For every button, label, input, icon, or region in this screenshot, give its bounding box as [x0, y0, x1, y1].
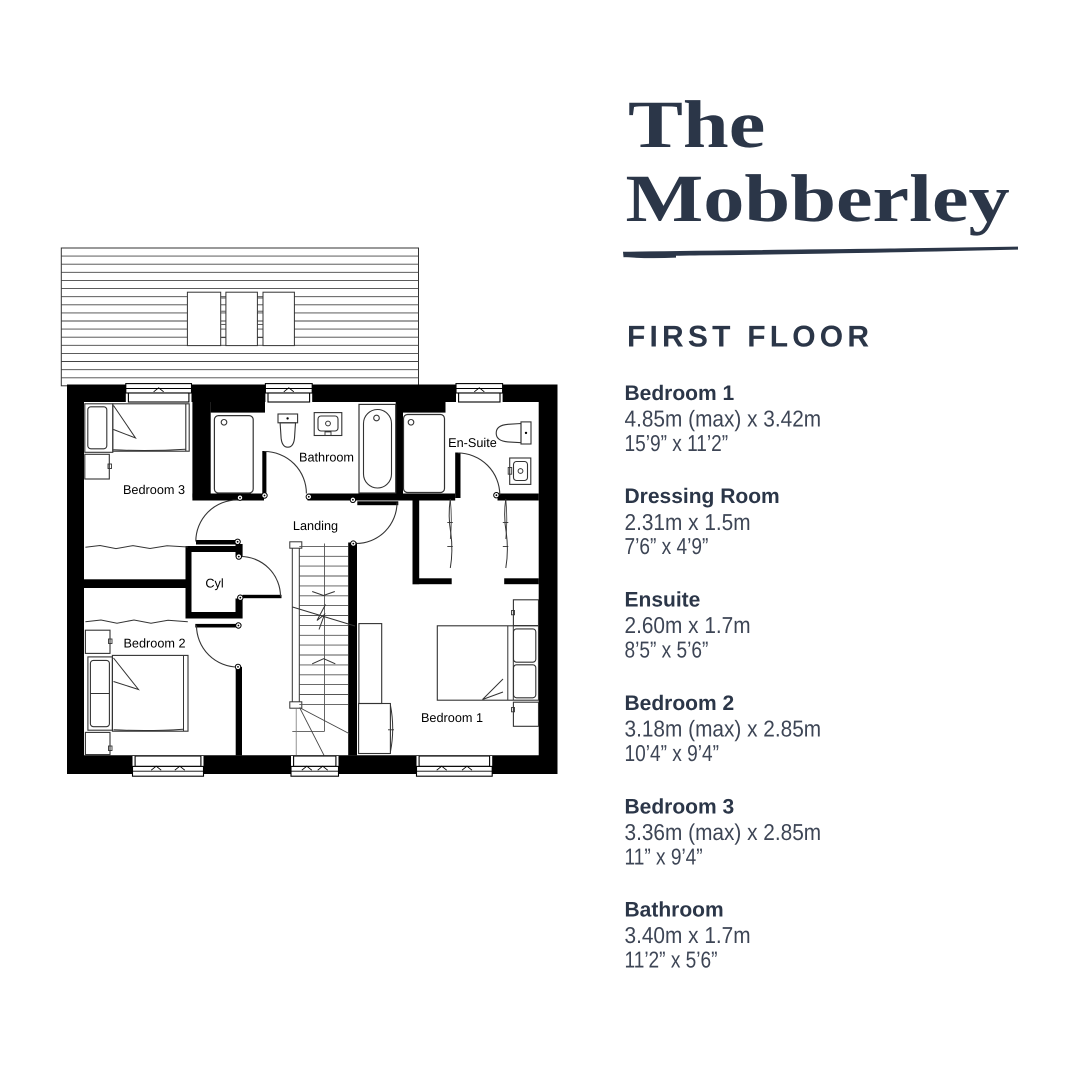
svg-text:Ensuite: Ensuite [625, 589, 701, 612]
svg-text:Bedroom 2: Bedroom 2 [123, 637, 185, 651]
svg-text:2.60m x 1.7m: 2.60m x 1.7m [625, 612, 751, 638]
svg-text:Bathroom: Bathroom [299, 451, 354, 465]
svg-text:4.85m (max) x 3.42m: 4.85m (max) x 3.42m [625, 406, 822, 432]
svg-text:10’4” x 9’4”: 10’4” x 9’4” [625, 740, 719, 766]
svg-text:11” x 9’4”: 11” x 9’4” [625, 843, 703, 869]
svg-text:Bathroom: Bathroom [625, 899, 724, 922]
svg-text:3.18m (max) x 2.85m: 3.18m (max) x 2.85m [625, 716, 822, 742]
svg-text:Bedroom 2: Bedroom 2 [625, 692, 735, 715]
svg-text:8’5” x 5’6”: 8’5” x 5’6” [625, 637, 709, 663]
svg-text:En-Suite: En-Suite [448, 436, 497, 450]
svg-text:FIRST FLOOR: FIRST FLOOR [627, 320, 873, 353]
svg-text:Cyl: Cyl [205, 577, 223, 591]
svg-text:Bedroom 3: Bedroom 3 [123, 483, 185, 497]
svg-text:3.40m x 1.7m: 3.40m x 1.7m [625, 922, 751, 948]
svg-text:Bedroom 3: Bedroom 3 [625, 795, 735, 818]
svg-text:11’2” x 5’6”: 11’2” x 5’6” [625, 947, 718, 973]
svg-text:2.31m x 1.5m: 2.31m x 1.5m [625, 509, 751, 535]
svg-text:3.36m (max) x 2.85m: 3.36m (max) x 2.85m [625, 819, 822, 845]
svg-text:15’9” x 11’2”: 15’9” x 11’2” [625, 430, 729, 456]
svg-text:The: The [628, 87, 765, 162]
svg-text:Landing: Landing [293, 519, 338, 533]
svg-text:Bedroom 1: Bedroom 1 [625, 382, 735, 405]
svg-text:7’6” x 4’9”: 7’6” x 4’9” [625, 533, 709, 559]
svg-text:Bedroom 1: Bedroom 1 [421, 711, 483, 725]
svg-text:Mobberley: Mobberley [626, 161, 1011, 236]
svg-text:Dressing Room: Dressing Room [625, 485, 780, 508]
